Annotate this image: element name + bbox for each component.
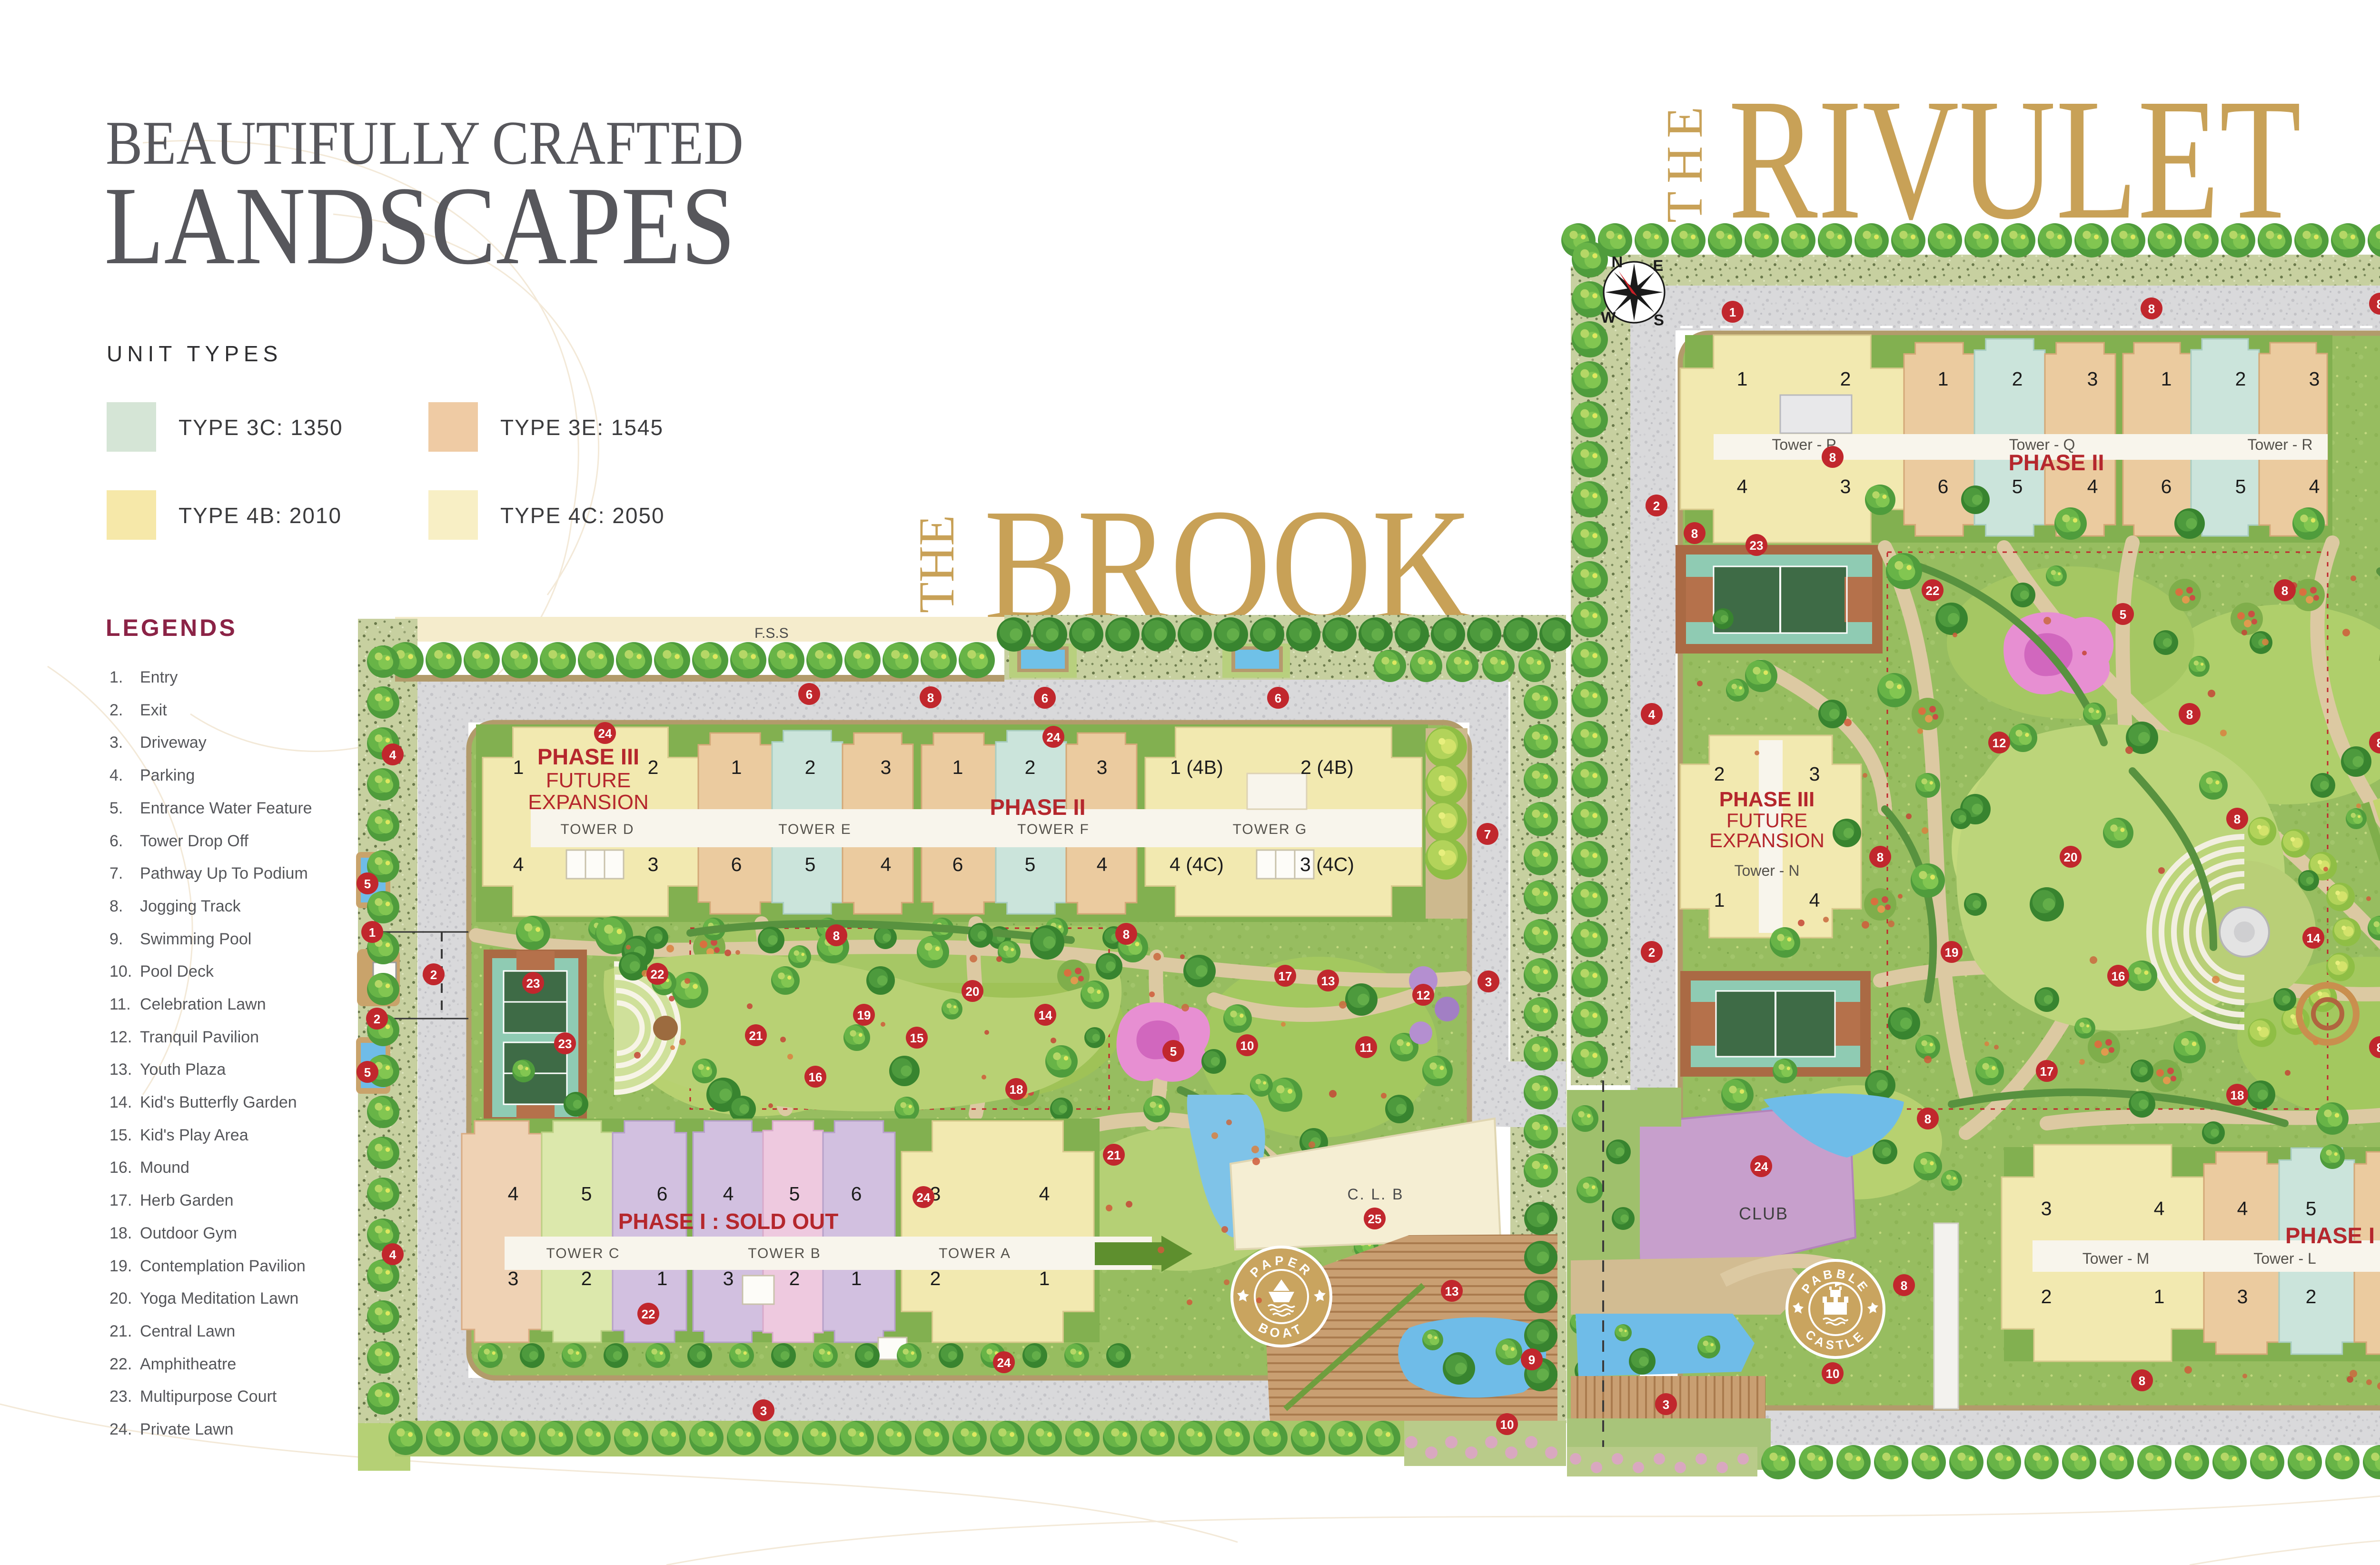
svg-text:3: 3	[648, 853, 659, 875]
svg-text:EXPANSION: EXPANSION	[528, 791, 648, 814]
svg-text:N: N	[1611, 253, 1623, 271]
svg-text:1: 1	[851, 1268, 862, 1289]
svg-text:4: 4	[2087, 475, 2098, 497]
svg-text:4: 4	[1809, 889, 1820, 911]
svg-text:TOWER D: TOWER D	[560, 822, 634, 837]
svg-text:8: 8	[2377, 1040, 2380, 1055]
svg-text:10: 10	[1500, 1417, 1514, 1432]
svg-text:5: 5	[1025, 853, 1036, 875]
svg-text:7: 7	[1484, 827, 1491, 842]
svg-text:20: 20	[2064, 850, 2078, 864]
svg-text:TOWER F: TOWER F	[1017, 822, 1090, 837]
svg-text:12: 12	[1417, 988, 1430, 1002]
svg-text:3: 3	[760, 1404, 767, 1418]
svg-text:12: 12	[1993, 736, 2006, 750]
svg-text:22: 22	[1926, 584, 1940, 598]
svg-text:PHASE II: PHASE II	[990, 794, 1085, 820]
svg-text:1: 1	[657, 1268, 668, 1289]
svg-text:8: 8	[1829, 450, 1836, 465]
svg-text:5: 5	[2012, 475, 2023, 497]
svg-text:19: 19	[1945, 945, 1959, 960]
svg-text:4: 4	[389, 1248, 397, 1262]
svg-text:2: 2	[930, 1268, 941, 1289]
svg-text:13: 13	[1445, 1284, 1459, 1298]
svg-text:8: 8	[2377, 736, 2380, 750]
svg-text:8: 8	[1691, 526, 1698, 541]
svg-text:8: 8	[2234, 812, 2241, 826]
svg-text:6: 6	[952, 853, 963, 875]
svg-text:3: 3	[2087, 368, 2098, 390]
svg-text:W: W	[1601, 308, 1616, 326]
svg-text:Tower - N: Tower - N	[1735, 862, 1800, 879]
svg-text:3: 3	[2237, 1286, 2248, 1307]
svg-text:22: 22	[642, 1307, 655, 1321]
svg-text:EXPANSION: EXPANSION	[1709, 829, 1825, 852]
svg-text:PHASE I: PHASE I	[2285, 1223, 2375, 1248]
svg-text:8: 8	[1877, 850, 1884, 864]
svg-text:Tower - R: Tower - R	[2248, 436, 2313, 453]
svg-text:14: 14	[1039, 1008, 1052, 1022]
svg-text:2: 2	[2235, 368, 2246, 390]
svg-text:8: 8	[2281, 584, 2288, 598]
svg-text:10: 10	[1240, 1039, 1254, 1053]
svg-text:23: 23	[558, 1037, 572, 1051]
svg-text:2: 2	[1653, 499, 1660, 513]
svg-text:8: 8	[1123, 927, 1130, 941]
svg-text:4 (4C): 4 (4C)	[1170, 853, 1224, 875]
svg-text:22: 22	[651, 967, 664, 981]
svg-text:3: 3	[1097, 756, 1108, 778]
svg-text:F.S.S: F.S.S	[754, 625, 789, 641]
svg-text:1: 1	[2161, 368, 2172, 390]
svg-text:8: 8	[2377, 297, 2380, 311]
svg-text:24: 24	[917, 1190, 931, 1205]
svg-text:4: 4	[1039, 1183, 1050, 1205]
svg-text:E: E	[1653, 257, 1663, 274]
svg-text:23: 23	[526, 976, 540, 991]
svg-text:19: 19	[857, 1008, 871, 1022]
svg-text:2: 2	[1840, 368, 1851, 390]
svg-text:1: 1	[1938, 368, 1949, 390]
svg-text:3: 3	[1809, 763, 1820, 785]
svg-text:PHASE I : SOLD OUT: PHASE I : SOLD OUT	[618, 1209, 839, 1234]
svg-text:8: 8	[927, 691, 934, 705]
svg-text:3: 3	[508, 1268, 519, 1289]
svg-text:TOWER B: TOWER B	[748, 1246, 821, 1261]
svg-text:Tower - L: Tower - L	[2253, 1250, 2316, 1267]
svg-text:FUTURE: FUTURE	[1726, 809, 1807, 832]
svg-text:4: 4	[2309, 475, 2320, 497]
svg-text:1: 1	[2154, 1286, 2165, 1307]
svg-text:2: 2	[2306, 1286, 2317, 1307]
svg-text:5: 5	[581, 1183, 592, 1205]
svg-text:6: 6	[2161, 475, 2172, 497]
svg-text:1: 1	[1729, 305, 1736, 319]
svg-text:6: 6	[851, 1183, 862, 1205]
svg-text:2: 2	[2041, 1286, 2052, 1307]
svg-text:1: 1	[1039, 1268, 1050, 1289]
svg-text:18: 18	[1010, 1082, 1023, 1097]
svg-text:2: 2	[805, 756, 816, 778]
svg-text:6: 6	[806, 687, 813, 702]
svg-text:6: 6	[1041, 691, 1048, 705]
svg-text:2: 2	[581, 1268, 592, 1289]
svg-text:6: 6	[657, 1183, 668, 1205]
svg-text:5: 5	[1170, 1044, 1177, 1059]
svg-text:10: 10	[1826, 1367, 1840, 1381]
svg-text:11: 11	[1359, 1040, 1373, 1055]
svg-text:4: 4	[881, 853, 892, 875]
svg-text:5: 5	[789, 1183, 800, 1205]
svg-text:3 (4C): 3 (4C)	[1300, 853, 1354, 875]
svg-text:2: 2	[789, 1268, 800, 1289]
svg-text:2: 2	[648, 756, 659, 778]
svg-text:6: 6	[1275, 691, 1281, 705]
svg-text:3: 3	[2041, 1198, 2052, 1219]
svg-text:4: 4	[508, 1183, 519, 1205]
svg-text:14: 14	[2307, 931, 2320, 945]
svg-text:8: 8	[1924, 1112, 1931, 1126]
svg-text:1: 1	[1737, 368, 1748, 390]
svg-text:PHASE II: PHASE II	[2008, 450, 2104, 475]
svg-text:4: 4	[389, 748, 397, 762]
svg-text:TOWER A: TOWER A	[939, 1246, 1011, 1261]
svg-text:5: 5	[364, 1065, 371, 1080]
svg-text:9: 9	[1528, 1353, 1535, 1367]
svg-text:15: 15	[910, 1031, 924, 1045]
svg-text:3: 3	[1840, 475, 1851, 497]
svg-text:2: 2	[1714, 763, 1725, 785]
svg-text:TOWER G: TOWER G	[1233, 822, 1308, 837]
svg-text:1: 1	[369, 925, 376, 940]
svg-text:FUTURE: FUTURE	[546, 769, 631, 792]
svg-text:2: 2	[1025, 756, 1036, 778]
svg-text:4: 4	[2154, 1198, 2165, 1219]
svg-text:17: 17	[2040, 1064, 2054, 1079]
svg-text:CLUB: CLUB	[1739, 1204, 1788, 1223]
svg-text:16: 16	[809, 1070, 823, 1084]
svg-text:6: 6	[731, 853, 742, 875]
svg-text:24: 24	[1755, 1159, 1768, 1174]
svg-text:1: 1	[731, 756, 742, 778]
svg-text:16: 16	[2112, 969, 2125, 983]
svg-text:8: 8	[833, 929, 840, 943]
svg-text:TOWER E: TOWER E	[778, 822, 851, 837]
svg-text:4: 4	[1737, 475, 1748, 497]
svg-text:2: 2	[374, 1012, 380, 1026]
svg-text:2 (4B): 2 (4B)	[1300, 756, 1354, 778]
svg-text:17: 17	[1279, 969, 1292, 983]
svg-text:13: 13	[1321, 974, 1335, 988]
svg-text:20: 20	[966, 984, 980, 999]
svg-text:25: 25	[1368, 1212, 1382, 1226]
svg-text:1: 1	[952, 756, 963, 778]
svg-text:24: 24	[1047, 730, 1061, 744]
svg-text:5: 5	[364, 877, 371, 891]
svg-text:18: 18	[2231, 1088, 2244, 1102]
svg-text:4: 4	[1097, 853, 1108, 875]
svg-text:24: 24	[997, 1356, 1011, 1370]
svg-text:3: 3	[1663, 1397, 1669, 1412]
svg-text:4: 4	[723, 1183, 734, 1205]
svg-text:5: 5	[2235, 475, 2246, 497]
svg-text:8: 8	[2148, 302, 2155, 316]
svg-text:S: S	[1654, 311, 1664, 329]
svg-text:Tower - M: Tower - M	[2082, 1250, 2149, 1267]
svg-text:8: 8	[2139, 1374, 2145, 1388]
svg-text:6: 6	[1938, 475, 1949, 497]
svg-text:24: 24	[598, 726, 612, 741]
svg-text:2: 2	[2012, 368, 2023, 390]
svg-text:21: 21	[749, 1029, 763, 1043]
svg-text:5: 5	[2120, 607, 2126, 622]
svg-text:TOWER C: TOWER C	[546, 1246, 620, 1261]
svg-text:4: 4	[513, 853, 524, 875]
svg-text:5: 5	[2306, 1198, 2317, 1219]
svg-text:3: 3	[881, 756, 892, 778]
svg-text:8: 8	[2186, 707, 2193, 722]
svg-text:1: 1	[1714, 889, 1725, 911]
svg-text:4: 4	[2237, 1198, 2248, 1219]
svg-text:PHASE III: PHASE III	[1719, 788, 1815, 811]
svg-text:4: 4	[1648, 707, 1656, 722]
svg-text:PHASE III: PHASE III	[537, 744, 639, 769]
svg-text:23: 23	[1750, 538, 1764, 553]
svg-text:8: 8	[1901, 1278, 1907, 1293]
svg-text:C. L. B: C. L. B	[1348, 1186, 1404, 1203]
svg-text:3: 3	[723, 1268, 734, 1289]
svg-text:21: 21	[1107, 1148, 1121, 1162]
svg-text:5: 5	[805, 853, 816, 875]
svg-text:3: 3	[1485, 975, 1492, 989]
svg-text:3: 3	[2309, 368, 2320, 390]
svg-text:2: 2	[430, 968, 437, 982]
svg-text:2: 2	[1648, 945, 1655, 960]
svg-text:1: 1	[513, 756, 524, 778]
svg-text:1 (4B): 1 (4B)	[1170, 756, 1223, 778]
